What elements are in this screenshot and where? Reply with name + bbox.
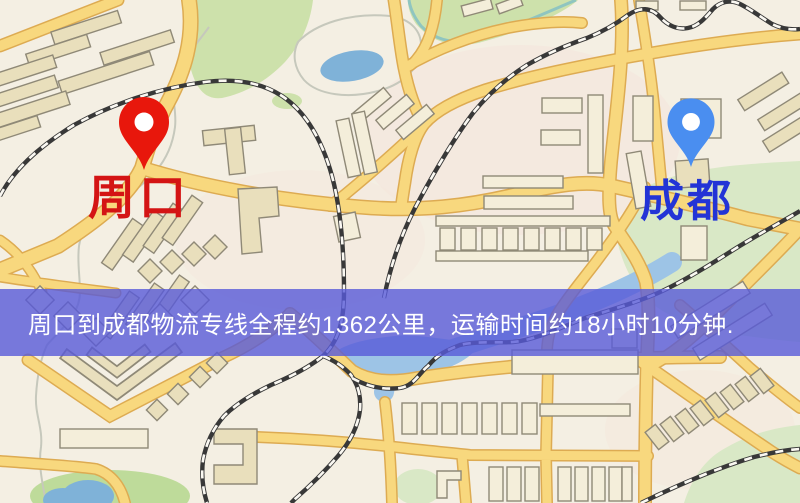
base-map xyxy=(0,0,800,503)
pin-hole xyxy=(682,113,700,131)
pin-hole xyxy=(135,113,154,132)
route-info-text: 周口到成都物流专线全程约1362公里，运输时间约18小时10分钟. xyxy=(28,305,734,340)
origin-city-label: 周口 xyxy=(88,174,190,221)
origin-pin[interactable] xyxy=(119,97,169,170)
route-info-banner: 周口到成都物流专线全程约1362公里，运输时间约18小时10分钟. xyxy=(0,289,800,356)
map-pin-icon xyxy=(119,97,169,170)
destination-city-label: 成都 xyxy=(640,180,734,224)
map-canvas[interactable]: 周口 成都 周口到成都物流专线全程约1362公里，运输时间约18小时10分钟. xyxy=(0,0,800,503)
